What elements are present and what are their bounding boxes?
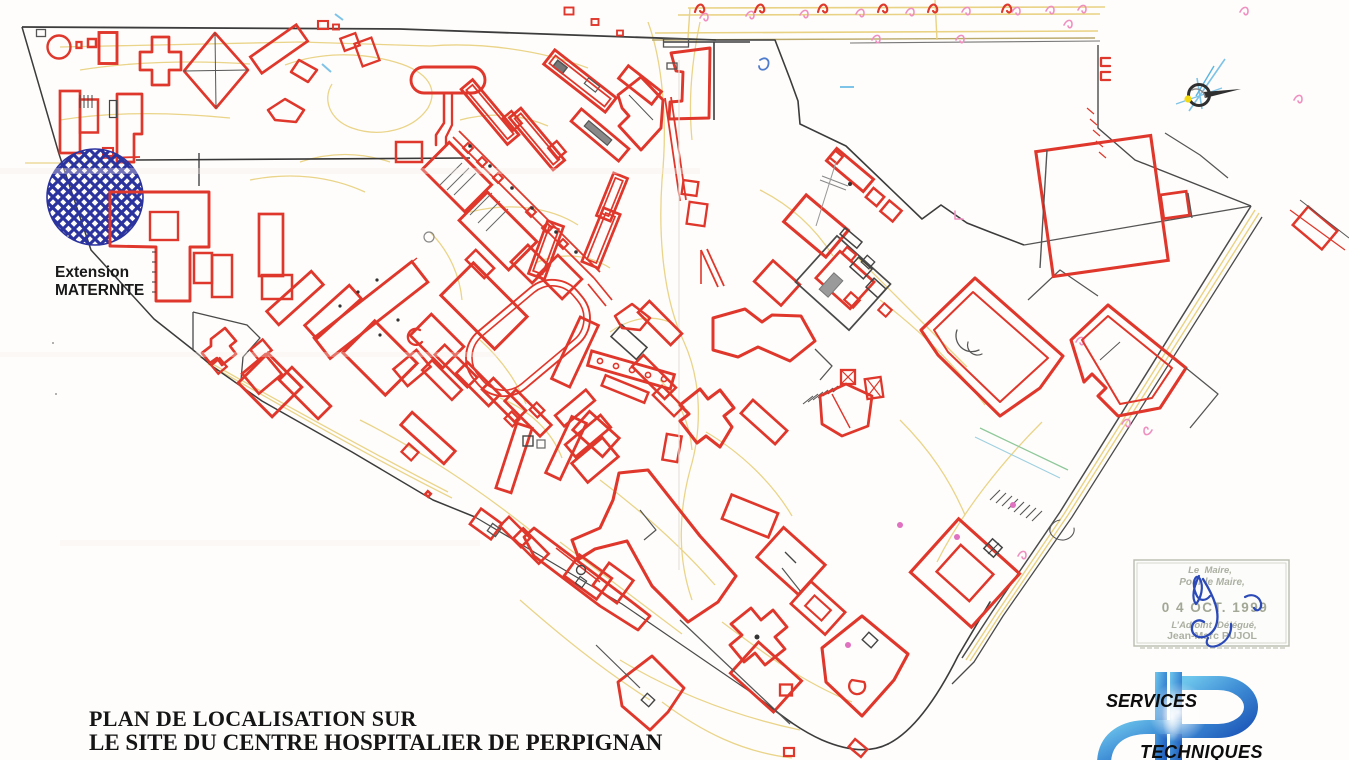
svg-text:Le Maire,: Le Maire, <box>1188 565 1232 576</box>
svg-text:TECHNIQUES: TECHNIQUES <box>1140 742 1263 760</box>
svg-text:Extension: Extension <box>55 264 129 281</box>
svg-text:PLAN DE LOCALISATION SUR: PLAN DE LOCALISATION SUR <box>89 706 417 731</box>
svg-text:SERVICES: SERVICES <box>1106 691 1197 711</box>
svg-text:MATERNITE: MATERNITE <box>55 282 144 299</box>
svg-text:LE SITE DU CENTRE HOSPITALIER: LE SITE DU CENTRE HOSPITALIER DE PERPIGN… <box>89 730 663 755</box>
svg-text:Pour le Maire,: Pour le Maire, <box>1179 577 1245 588</box>
